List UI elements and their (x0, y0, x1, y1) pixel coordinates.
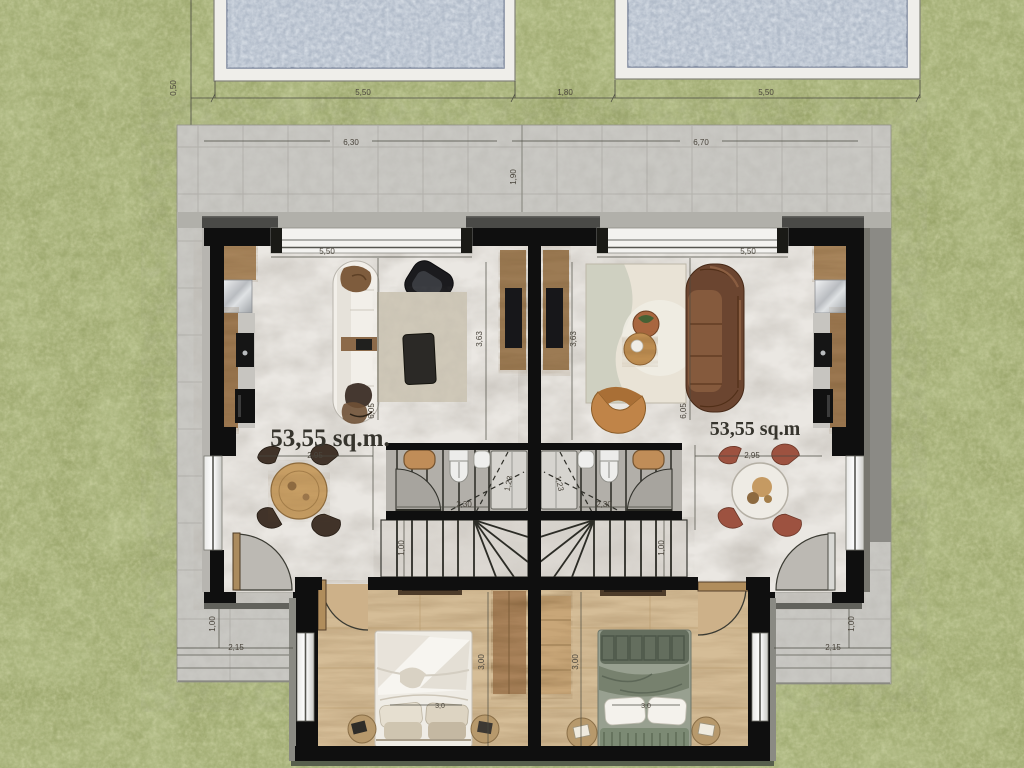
svg-text:2,15: 2,15 (228, 643, 244, 652)
svg-text:5,50: 5,50 (740, 247, 756, 256)
svg-text:1,00: 1,00 (657, 540, 666, 556)
svg-text:6,70: 6,70 (693, 138, 709, 147)
svg-text:2,30: 2,30 (456, 500, 472, 509)
svg-text:3,0: 3,0 (435, 703, 445, 710)
svg-text:1,00: 1,00 (397, 540, 406, 556)
svg-text:5,50: 5,50 (355, 88, 371, 97)
svg-text:0,50: 0,50 (169, 80, 178, 96)
svg-text:5,50: 5,50 (758, 88, 774, 97)
svg-text:2,15: 2,15 (825, 643, 841, 652)
svg-text:53,55 sq.m: 53,55 sq.m (710, 418, 801, 440)
svg-text:1,90: 1,90 (509, 169, 518, 185)
svg-text:1,80: 1,80 (557, 88, 573, 97)
svg-text:3,63: 3,63 (569, 331, 578, 347)
svg-text:2,30: 2,30 (596, 500, 612, 509)
svg-text:6,30: 6,30 (343, 138, 359, 147)
svg-text:3,63: 3,63 (475, 331, 484, 347)
svg-text:1,00: 1,00 (847, 616, 856, 632)
svg-text:5,50: 5,50 (319, 247, 335, 256)
svg-text:3,00: 3,00 (477, 654, 486, 670)
svg-text:53,55 sq.m.: 53,55 sq.m. (270, 425, 389, 452)
svg-text:6,05: 6,05 (367, 403, 376, 419)
svg-text:6,05: 6,05 (679, 403, 688, 419)
svg-text:3,0: 3,0 (641, 703, 651, 710)
svg-text:1,00: 1,00 (208, 616, 217, 632)
svg-text:2,95: 2,95 (744, 451, 760, 460)
svg-text:3,00: 3,00 (571, 654, 580, 670)
svg-text:2,95: 2,95 (307, 451, 323, 460)
